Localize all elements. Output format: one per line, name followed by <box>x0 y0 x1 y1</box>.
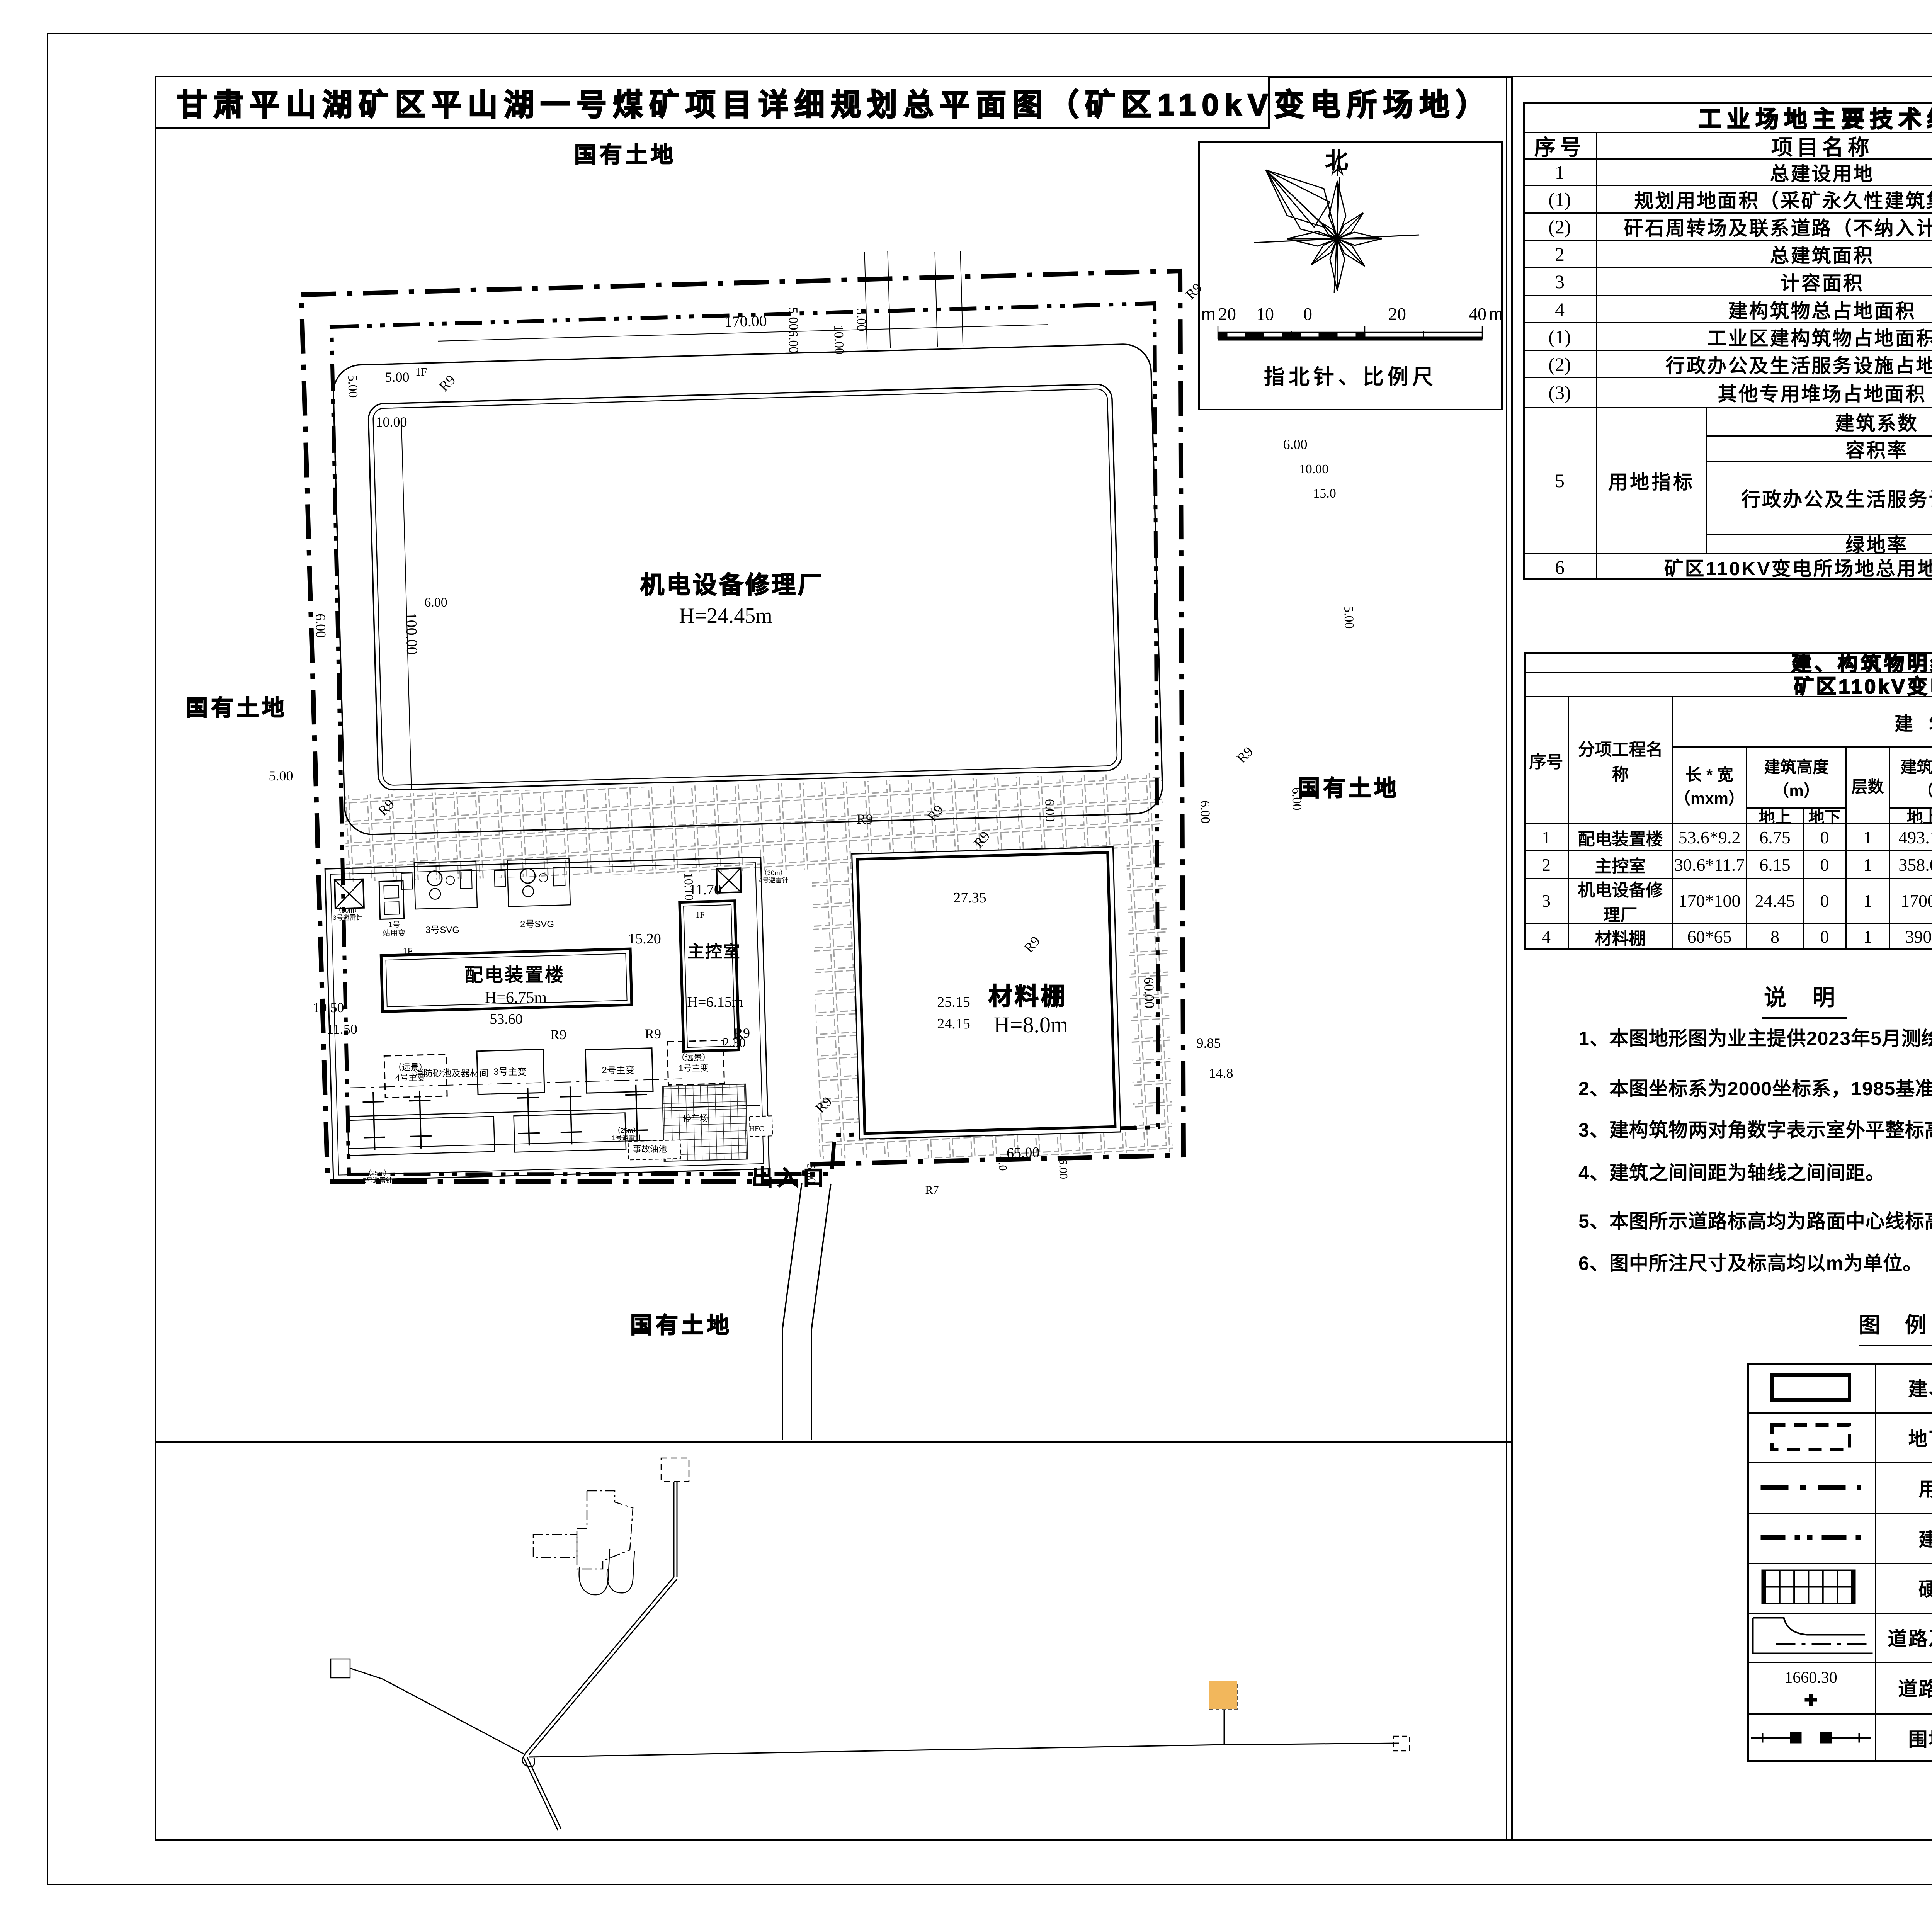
svg-text:（30m）: （30m） <box>760 869 786 877</box>
svg-text:6.00: 6.00 <box>1283 437 1308 452</box>
svg-text:4.0: 4.0 <box>996 1156 1009 1171</box>
svg-text:R9: R9 <box>971 828 993 850</box>
svg-text:3号主变: 3号主变 <box>493 1067 526 1077</box>
svg-text:5.00: 5.00 <box>269 768 293 783</box>
svg-text:6.00: 6.00 <box>786 330 801 353</box>
svg-text:R9: R9 <box>813 1094 835 1116</box>
svg-text:6.00: 6.00 <box>1289 787 1304 811</box>
svg-text:R9: R9 <box>857 811 873 827</box>
svg-text:5.00: 5.00 <box>804 1163 818 1184</box>
svg-text:国有土地: 国有土地 <box>1298 776 1400 801</box>
svg-text:1号: 1号 <box>388 921 400 929</box>
svg-text:6.00: 6.00 <box>1197 800 1213 824</box>
svg-text:H=6.75m: H=6.75m <box>485 989 547 1007</box>
svg-text:10.50: 10.50 <box>313 1000 344 1015</box>
svg-text:m: m <box>1201 305 1216 324</box>
svg-text:24.15: 24.15 <box>937 1016 970 1032</box>
svg-text:15.0: 15.0 <box>1313 486 1336 501</box>
svg-text:11.50: 11.50 <box>327 1021 357 1037</box>
svg-text:R9: R9 <box>645 1026 661 1042</box>
svg-text:60.00: 60.00 <box>1141 977 1157 1009</box>
svg-text:H=24.45m: H=24.45m <box>679 604 772 628</box>
svg-text:14.8: 14.8 <box>1209 1066 1233 1081</box>
svg-text:H=6.15m: H=6.15m <box>687 994 743 1010</box>
svg-text:机电设备修理厂: 机电设备修理厂 <box>640 572 824 598</box>
svg-text:2号主变: 2号主变 <box>602 1065 634 1076</box>
svg-text:m: m <box>1489 305 1503 324</box>
svg-text:站用变: 站用变 <box>383 929 406 938</box>
svg-text:1F: 1F <box>696 910 704 919</box>
svg-text:0: 0 <box>1303 304 1312 324</box>
svg-text:R7: R7 <box>925 1184 939 1196</box>
svg-text:1F: 1F <box>403 947 412 957</box>
svg-text:H=8.0m: H=8.0m <box>994 1012 1068 1037</box>
svg-text:2号SVG: 2号SVG <box>520 919 554 930</box>
svg-text:R9: R9 <box>436 372 459 394</box>
svg-text:国有土地: 国有土地 <box>185 695 287 721</box>
svg-text:5.00: 5.00 <box>1341 606 1356 629</box>
svg-text:100.00: 100.00 <box>403 612 421 655</box>
svg-text:3号避雷针: 3号避雷针 <box>333 914 362 921</box>
svg-text:主控室: 主控室 <box>687 942 741 961</box>
svg-text:材料棚: 材料棚 <box>988 983 1067 1010</box>
svg-text:（25m）: （25m） <box>364 1169 390 1177</box>
svg-text:25.15: 25.15 <box>937 994 970 1010</box>
svg-text:2号避雷针: 2号避雷针 <box>362 1177 392 1184</box>
svg-text:北: 北 <box>1325 148 1348 173</box>
svg-text:国有土地: 国有土地 <box>574 142 676 167</box>
svg-text:5.00: 5.00 <box>854 308 869 331</box>
svg-text:6.00: 6.00 <box>1042 799 1057 822</box>
svg-text:10.00: 10.00 <box>831 325 846 355</box>
svg-text:（25m）: （25m） <box>614 1127 639 1134</box>
svg-text:10.00: 10.00 <box>1299 462 1329 476</box>
svg-text:事故油池: 事故油池 <box>633 1144 667 1154</box>
svg-text:10.00: 10.00 <box>376 414 407 430</box>
svg-text:指北针、比例尺: 指北针、比例尺 <box>1264 365 1437 389</box>
svg-text:R9: R9 <box>924 802 947 824</box>
svg-text:停车场: 停车场 <box>683 1113 708 1123</box>
svg-text:1660.30: 1660.30 <box>1784 1669 1837 1687</box>
svg-text:10: 10 <box>1256 304 1274 324</box>
svg-text:（远景）: （远景） <box>393 1062 427 1072</box>
svg-text:5.00: 5.00 <box>786 307 801 330</box>
svg-text:国有土地: 国有土地 <box>630 1313 732 1338</box>
svg-text:R9: R9 <box>375 796 398 819</box>
svg-text:4号避雷针: 4号避雷针 <box>759 877 788 884</box>
svg-text:20: 20 <box>1388 304 1406 324</box>
svg-text:10.10: 10.10 <box>682 872 696 901</box>
svg-text:配电装置楼: 配电装置楼 <box>464 965 565 986</box>
svg-text:6.00: 6.00 <box>313 614 329 638</box>
svg-text:40: 40 <box>1469 304 1486 324</box>
svg-text:4号主变: 4号主变 <box>395 1073 425 1083</box>
svg-text:6.00: 6.00 <box>424 595 447 610</box>
svg-text:（30m）: （30m） <box>335 907 361 914</box>
svg-text:1号避雷针: 1号避雷针 <box>612 1134 641 1142</box>
svg-text:170.00: 170.00 <box>724 312 767 331</box>
svg-text:1F: 1F <box>415 366 427 378</box>
svg-text:6.00: 6.00 <box>1056 1159 1070 1179</box>
svg-text:HFC: HFC <box>749 1125 764 1133</box>
svg-text:27.35: 27.35 <box>953 890 986 906</box>
svg-text:65.00: 65.00 <box>1006 1144 1040 1161</box>
svg-text:53.60: 53.60 <box>490 1011 523 1027</box>
svg-text:15.20: 15.20 <box>628 931 661 947</box>
svg-text:3号SVG: 3号SVG <box>425 925 459 935</box>
svg-text:1号主变: 1号主变 <box>679 1063 709 1073</box>
svg-text:R9: R9 <box>550 1027 566 1042</box>
svg-text:R9: R9 <box>734 1025 750 1041</box>
svg-text:（远景）: （远景） <box>677 1053 711 1062</box>
svg-text:R9: R9 <box>1234 744 1256 766</box>
svg-text:20: 20 <box>1218 304 1236 324</box>
svg-text:9.85: 9.85 <box>1197 1035 1221 1051</box>
svg-text:5.00: 5.00 <box>385 369 410 385</box>
svg-text:5.00: 5.00 <box>345 375 360 398</box>
svg-text:R9: R9 <box>1021 933 1043 955</box>
